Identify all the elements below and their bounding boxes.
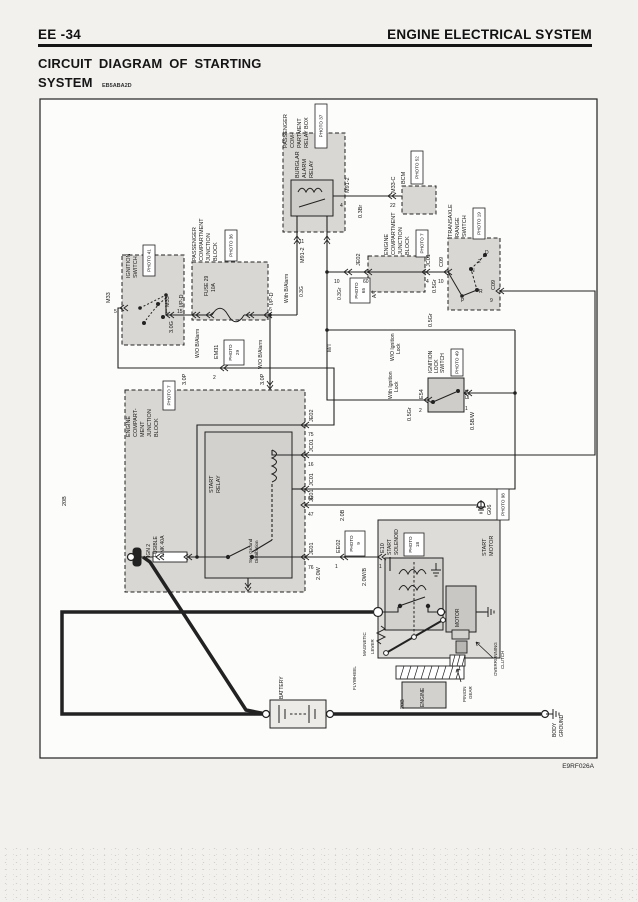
clutch-hub-icon xyxy=(456,641,467,653)
pin-label: 9 xyxy=(490,298,493,304)
pin-label: 6 xyxy=(269,307,272,313)
diagram-label: ENGINE xyxy=(420,687,426,707)
diagram-label: GROUND xyxy=(559,714,565,737)
diagram-label: M33 xyxy=(106,292,112,303)
junction-dot xyxy=(513,391,517,395)
photo-badge-label: 9 xyxy=(356,542,361,545)
terminal-icon xyxy=(128,554,135,561)
ignition-on-dot xyxy=(157,303,160,306)
diagram-label: JE02 xyxy=(309,409,315,422)
pin-label: 47 xyxy=(308,512,314,518)
lever-pivot xyxy=(384,651,389,656)
pin-label: 2 xyxy=(213,375,216,381)
diagram-label: JE01 xyxy=(309,542,315,555)
diagram-label: M33 xyxy=(165,296,171,307)
diagram-label: See Ground xyxy=(248,538,253,563)
pin-label: 1 xyxy=(335,564,338,570)
diagram-label: PINION xyxy=(462,686,467,702)
diagram-label: Distribution xyxy=(254,540,259,563)
diagram-label: BLOCK xyxy=(405,236,411,255)
terminal-icon xyxy=(374,608,383,617)
diagram-label: OVERRUNNING xyxy=(493,642,498,676)
diagram-label: 0.5Gr xyxy=(407,407,413,421)
diagram-label: M91-2 xyxy=(345,177,351,193)
diagram-label: C09 xyxy=(439,257,445,267)
diagram-label: COM- xyxy=(290,133,296,148)
diagram-label: 0.3G xyxy=(299,286,305,297)
pin-label: 11 xyxy=(299,239,304,245)
battery-box xyxy=(270,700,326,728)
pin-label: 2 xyxy=(478,259,481,265)
diagram-label: ENGINE xyxy=(126,416,132,437)
photo-badge-label: PHOTO xyxy=(228,344,233,361)
photo-badge-label: PHOTO 98 xyxy=(501,493,506,516)
photo-badge-label: 65 xyxy=(361,288,366,294)
diagram-label: Lock xyxy=(396,343,402,354)
terminal-icon xyxy=(327,711,334,718)
diagram-label: JC01 xyxy=(309,439,315,452)
diagram-label: E54 xyxy=(419,389,425,399)
diagram-label: GEAR xyxy=(468,685,473,699)
diagram-label: JUNCTION xyxy=(147,409,153,437)
diagram-label: 10A xyxy=(211,282,217,292)
diagram-label: 20B xyxy=(62,496,68,506)
junction-dot xyxy=(195,555,199,559)
diagram-label: 2.0W xyxy=(316,566,322,580)
pin-label: R xyxy=(479,289,483,295)
diagram-label: W/O B/Alarm xyxy=(195,329,201,358)
photo-badge-label: PHOTO xyxy=(349,535,354,552)
pin-label: 10 xyxy=(438,279,444,285)
diagram-label: FLYWHEEL xyxy=(352,666,357,690)
photo-badge-label: PHOTO 49 xyxy=(455,351,460,374)
photo-badge-label: PHOTO xyxy=(408,536,413,553)
photo-badge-label: PHOTO xyxy=(354,282,359,299)
diagram-label: EM31 xyxy=(214,345,220,359)
diagram-label: LEVER xyxy=(370,638,375,654)
diagram-label: RELAY xyxy=(309,160,315,178)
photo-badge-label: 18 xyxy=(415,542,420,548)
diagram-label: C09 xyxy=(491,280,497,290)
diagram-label: START xyxy=(209,475,215,493)
diagram-label: 0.5B/W xyxy=(470,411,476,430)
diagram-label: RANGE xyxy=(455,217,461,237)
diagram-label: I/P-D xyxy=(179,294,185,307)
diagram-label: 0.5Gr xyxy=(428,313,434,327)
diagram-label: A/T xyxy=(372,290,378,298)
diagram-label: MENT xyxy=(140,421,146,437)
pin-label: 15 xyxy=(177,309,183,315)
diagram-label: SOLENOID xyxy=(394,529,400,555)
contact-dot xyxy=(457,390,460,393)
diagram-label: PASSENGER xyxy=(283,114,289,148)
diagram-label: JC01 xyxy=(426,254,432,267)
photo-badge-label: PHOTO 41 xyxy=(147,249,152,272)
photo-badge-label: PHOTO 19 xyxy=(477,212,482,235)
diagram-label: COMPART- xyxy=(133,408,139,437)
photo-badge-label: PHOTO 7 xyxy=(420,233,425,254)
diagram-label: MOTOR xyxy=(455,608,461,627)
junction-dot xyxy=(138,306,142,310)
diagram-label: E10 xyxy=(380,543,386,553)
diagram-label: With B/Alarm xyxy=(284,274,290,303)
diagram-label: PARTMENT xyxy=(297,118,303,148)
ignition-lock-switch-box xyxy=(428,378,464,412)
diagram-label: SWITCH xyxy=(462,215,468,237)
diagram-label: BODY xyxy=(552,722,558,737)
diagram-label: PASSENGER xyxy=(192,227,198,261)
diagram-label: FUSIBLE xyxy=(153,535,159,557)
diagram-label: 3.0G xyxy=(169,321,175,333)
pin-label: 4 xyxy=(340,203,343,209)
diagram-label: M/T xyxy=(327,343,333,352)
junction-dot xyxy=(325,328,329,332)
pin-label: 22 xyxy=(390,203,396,209)
diagram-label: COMPARTMENT xyxy=(199,218,205,261)
terminal-icon xyxy=(438,609,445,616)
photo-badge-label: PHOTO 52 xyxy=(415,156,420,179)
diagram-label: E54 xyxy=(465,389,471,399)
lever-pivot xyxy=(412,635,417,640)
diagram-label: MAGNETIC xyxy=(362,631,367,656)
pin-label: 1 xyxy=(465,406,468,412)
pin-label: 76 xyxy=(308,565,314,571)
ignition-acc-dot xyxy=(162,316,165,319)
engine-compartment-junction-block-small-box xyxy=(368,256,425,292)
diagram-label: CLUTCH xyxy=(500,651,505,669)
circuit-diagram: PHOTO 37PHOTO 52PHOTO 41PHOTO 36PHOTO29P… xyxy=(0,0,638,902)
diagram-label: BATTERY xyxy=(279,676,285,699)
diagram-label: 0.3Br xyxy=(358,205,364,218)
diagram-label: 3.0P xyxy=(260,373,266,385)
pin-label: 10 xyxy=(334,279,340,285)
diagram-label: BCM xyxy=(401,171,407,184)
motor-box xyxy=(446,586,476,632)
pin-label: 16 xyxy=(308,462,314,468)
photo-badge-label: PHOTO 37 xyxy=(319,114,324,137)
diagram-label: BLOCK xyxy=(154,418,160,437)
diagram-label: 2.0W/B xyxy=(362,568,368,586)
pin-label: 2 xyxy=(419,408,422,414)
bcm-box xyxy=(402,186,436,214)
diagram-label: COMPARTMENT xyxy=(391,212,397,255)
burglar-alarm-relay-box xyxy=(291,180,333,216)
terminal-icon xyxy=(263,711,270,718)
pin-label: D xyxy=(485,250,489,256)
junction-dot xyxy=(268,313,272,317)
diagram-label: FUSE 29 xyxy=(204,275,210,296)
diagram-label: Lock xyxy=(394,381,400,392)
diagram-label: JUNCTION xyxy=(206,233,212,261)
diagram-label: G06 xyxy=(487,505,493,515)
diagram-label: ALARM xyxy=(302,159,308,178)
diagram-label: RELAY xyxy=(216,475,222,493)
diagram-label: START xyxy=(482,538,488,556)
photo-badge-label: 29 xyxy=(235,350,240,356)
photo-badge-label: PHOTO 7 xyxy=(167,385,172,406)
pin-label: 5 xyxy=(114,309,117,315)
diagram-label: I/P-D xyxy=(269,292,275,305)
pin-label: 62 xyxy=(308,496,314,502)
diagram-label: TRANSAXLE xyxy=(448,204,454,237)
diagram-label: SWITCH xyxy=(133,256,139,278)
lever-pivot xyxy=(441,618,446,623)
ignition-lock-dot xyxy=(143,322,146,325)
diagram-label: BLOCK xyxy=(213,242,219,261)
diagram-label: IGN 2 xyxy=(146,544,152,557)
diagram-label: 2.0B xyxy=(340,509,346,521)
pin-label: N xyxy=(471,268,475,274)
junction-dot xyxy=(325,270,329,274)
pin-label: 1 xyxy=(165,309,168,315)
photo-badge-label: PHOTO 36 xyxy=(229,234,234,257)
diagram-label: RELAY BOX xyxy=(304,117,310,148)
diagram-label: MOTOR xyxy=(489,536,495,556)
diagram-label: IGNITION xyxy=(126,254,132,278)
diagram-label: START xyxy=(387,539,393,555)
junction-dot xyxy=(164,293,168,297)
diagram-label: EE02 xyxy=(336,540,342,553)
diagram-label: JE02 xyxy=(356,253,362,266)
diagram-label: JC01 xyxy=(309,473,315,486)
diagram-label: M33-C xyxy=(391,176,397,193)
diagram-label: LINK 40A xyxy=(160,535,166,557)
scan-noise xyxy=(0,845,638,902)
pin-label: 1 xyxy=(379,564,382,570)
pin-label: 4 xyxy=(426,279,429,285)
diagram-label: W/O B/Alarm xyxy=(258,340,264,369)
overrunning-clutch-icon xyxy=(452,630,469,639)
pin-label: 60 xyxy=(363,279,369,285)
diagram-label: BURGLAR xyxy=(295,151,301,178)
diagram-label: ENGINE xyxy=(384,234,390,255)
pin-label: 75 xyxy=(308,432,314,438)
diagram-label: M91-2 xyxy=(300,247,306,263)
diagram-label: SWITCH xyxy=(440,353,446,373)
diagram-label: 0.3Gr xyxy=(337,287,343,300)
diagram-label: JUNCTION xyxy=(398,227,404,255)
diagram-label: 3.0P xyxy=(182,373,188,385)
diagram-label: 20B xyxy=(400,699,406,709)
